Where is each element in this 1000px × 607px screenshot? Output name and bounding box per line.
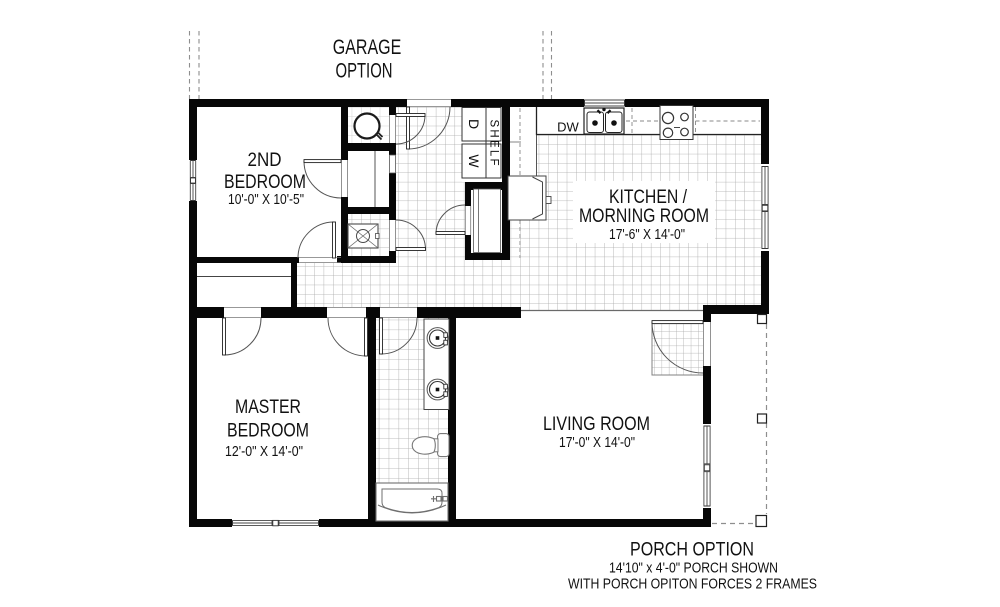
svg-text:GARAGE: GARAGE [333, 36, 402, 59]
svg-text:MORNING ROOM: MORNING ROOM [579, 206, 709, 227]
svg-text:DW: DW [557, 120, 579, 135]
svg-text:2ND: 2ND [248, 150, 282, 171]
svg-text:14'10" x 4'-0" PORCH SHOWN: 14'10" x 4'-0" PORCH SHOWN [609, 561, 778, 577]
svg-text:W: W [466, 154, 482, 168]
svg-text:WITH PORCH OPITON FORCES 2 FRA: WITH PORCH OPITON FORCES 2 FRAMES [568, 577, 817, 593]
svg-text:OPTION: OPTION [336, 60, 393, 83]
svg-text:BEDROOM: BEDROOM [224, 172, 306, 193]
svg-text:10'-0" X 10'-5": 10'-0" X 10'-5" [228, 192, 304, 208]
svg-text:BEDROOM: BEDROOM [227, 421, 309, 442]
svg-text:D: D [466, 119, 482, 129]
svg-text:LIVING ROOM: LIVING ROOM [543, 414, 650, 435]
svg-text:KITCHEN /: KITCHEN / [609, 187, 688, 208]
svg-text:17'-6" X 14'-0": 17'-6" X 14'-0" [609, 227, 685, 243]
svg-text:SHELF: SHELF [488, 120, 500, 166]
svg-text:12'-0" X 14'-0": 12'-0" X 14'-0" [225, 444, 303, 460]
svg-text:17'-0" X 14'-0": 17'-0" X 14'-0" [559, 435, 635, 451]
svg-text:MASTER: MASTER [235, 397, 301, 418]
svg-text:PORCH OPTION: PORCH OPTION [630, 540, 754, 561]
